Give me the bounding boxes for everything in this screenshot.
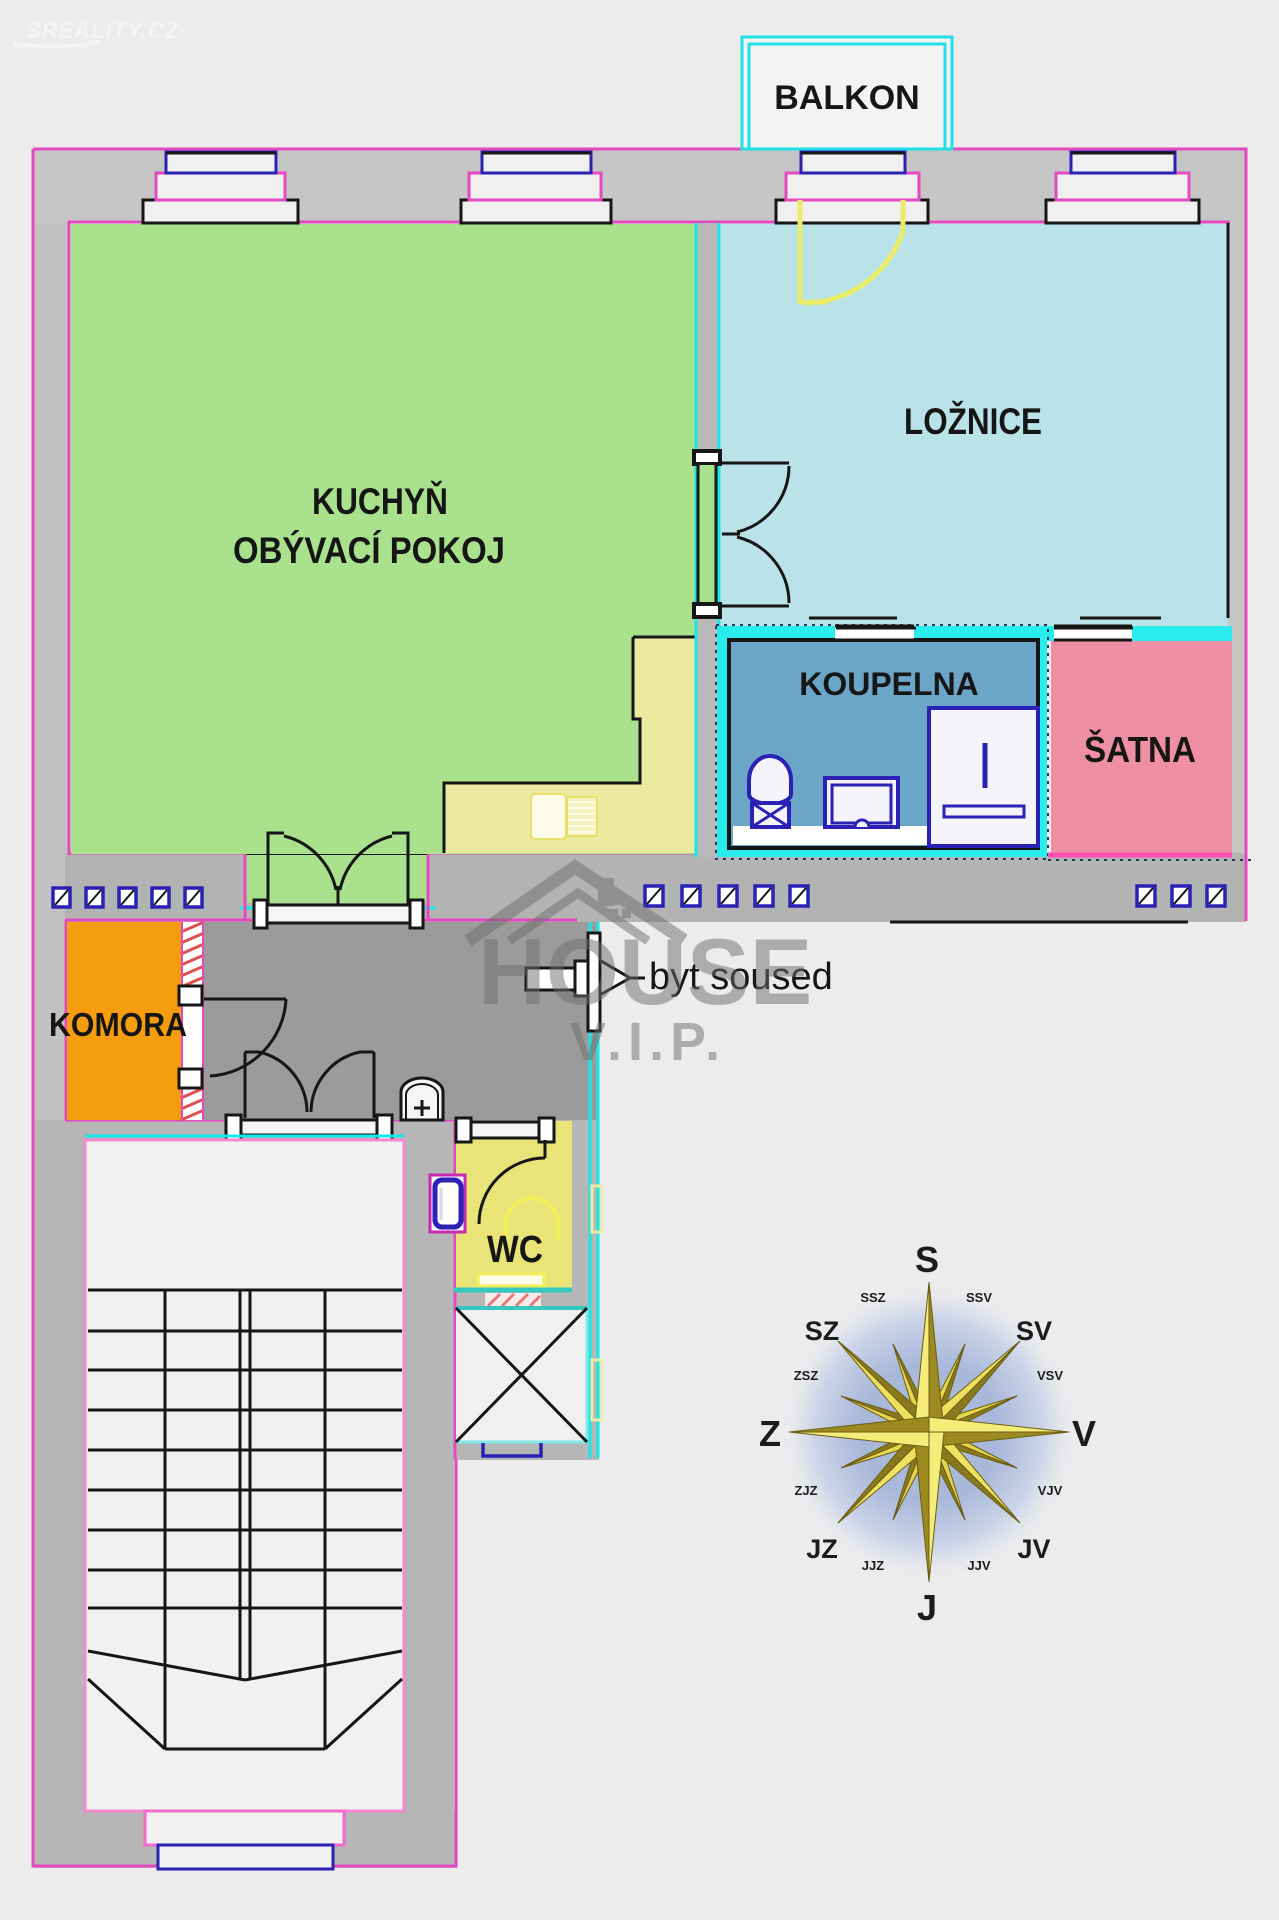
svg-text:ZSZ: ZSZ bbox=[794, 1368, 819, 1383]
svg-text:S: S bbox=[915, 1239, 939, 1280]
svg-text:V.I.P.: V.I.P. bbox=[570, 1012, 726, 1072]
svg-text:OBÝVACÍ POKOJ: OBÝVACÍ POKOJ bbox=[233, 530, 505, 571]
svg-text:SREALITY.CZ: SREALITY.CZ bbox=[26, 18, 180, 43]
svg-text:JJZ: JJZ bbox=[862, 1558, 884, 1573]
svg-text:SSV: SSV bbox=[966, 1290, 992, 1305]
svg-text:ZJZ: ZJZ bbox=[794, 1483, 817, 1498]
svg-text:LOŽNICE: LOŽNICE bbox=[904, 400, 1042, 442]
svg-text:SSZ: SSZ bbox=[860, 1290, 885, 1305]
svg-text:JJV: JJV bbox=[967, 1558, 990, 1573]
svg-text:VSV: VSV bbox=[1037, 1368, 1063, 1383]
svg-text:J: J bbox=[917, 1587, 937, 1628]
svg-text:JZ: JZ bbox=[806, 1534, 838, 1564]
svg-text:ŠATNA: ŠATNA bbox=[1084, 728, 1196, 770]
svg-text:SV: SV bbox=[1016, 1316, 1052, 1346]
svg-text:VJV: VJV bbox=[1038, 1483, 1063, 1498]
svg-text:KOUPELNA: KOUPELNA bbox=[799, 666, 979, 702]
svg-text:SZ: SZ bbox=[805, 1316, 840, 1346]
svg-text:BALKON: BALKON bbox=[774, 79, 919, 117]
svg-text:WC: WC bbox=[487, 1229, 543, 1271]
svg-text:HOUSE: HOUSE bbox=[478, 919, 812, 1024]
svg-text:JV: JV bbox=[1017, 1534, 1050, 1564]
svg-text:Z: Z bbox=[759, 1413, 781, 1454]
svg-text:KUCHYŇ: KUCHYŇ bbox=[312, 480, 448, 522]
svg-text:KOMORA: KOMORA bbox=[49, 1006, 187, 1043]
svg-text:V: V bbox=[1072, 1413, 1096, 1454]
